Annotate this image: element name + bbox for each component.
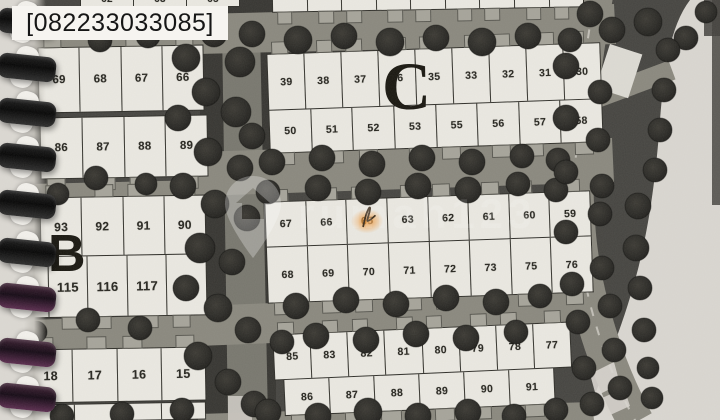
carport-footprint [345, 412, 366, 420]
lot-cell: 78 [495, 324, 534, 370]
lot-number: 92 [95, 219, 109, 233]
lot-cell: 91 [122, 196, 164, 255]
tree-icon [628, 276, 652, 300]
carport-footprint [14, 317, 32, 330]
carport-footprint [537, 32, 554, 46]
tree-icon [572, 356, 596, 380]
lot-cell: 30 [562, 43, 601, 99]
lot-number: 90 [481, 382, 494, 395]
site-plan-photo: 626365 69686766 86878889 93929190 114115… [0, 0, 720, 420]
carport-footprint [318, 11, 334, 24]
lot-cell: 89 [165, 116, 208, 177]
tree-icon [648, 118, 672, 142]
carport-footprint [355, 299, 374, 313]
lot-cell: 68 [79, 47, 121, 112]
carport-footprint [436, 296, 455, 310]
lot-cell [273, 0, 307, 12]
lot-cell: 118 [166, 254, 207, 315]
carport-footprint [177, 183, 196, 196]
lot-cell [117, 403, 161, 420]
lot-number: 67 [280, 218, 293, 230]
tree-icon [204, 294, 232, 322]
lot-cell: 73 [469, 239, 512, 295]
carport-footprint [270, 189, 289, 203]
lot-cell: 88 [123, 116, 166, 177]
carport-footprint [271, 41, 288, 55]
lot-cell: 17 [72, 349, 117, 402]
lot-number: 86 [301, 390, 314, 403]
lot-row [30, 401, 206, 420]
lot-strip: 6766656362616059 6869707172737576 [264, 190, 593, 303]
lot-cell: 58 [560, 99, 603, 142]
tree-icon [608, 376, 632, 400]
carport-footprint [396, 316, 413, 330]
lot-number: 71 [403, 264, 416, 276]
lot-number: 32 [502, 68, 515, 80]
carport-footprint [277, 11, 293, 24]
lot-number: 87 [346, 388, 359, 401]
lot-cell [341, 0, 376, 11]
tree-icon [652, 78, 676, 102]
lot-number: 68 [94, 73, 108, 85]
carport-footprint [500, 312, 517, 326]
lot-cell: 32 [488, 46, 527, 102]
lot-number: 118 [176, 277, 198, 292]
carport-footprint [562, 179, 581, 193]
lot-number: 38 [317, 74, 330, 86]
carport-footprint [388, 9, 404, 22]
lot-cell: 86 [284, 378, 330, 415]
carport-footprint [481, 182, 500, 196]
lot-subrow: 6869707172737576 [266, 236, 594, 303]
lot-number: 70 [363, 265, 376, 277]
tree-icon [590, 174, 614, 198]
tree-icon [234, 205, 260, 231]
tree-icon [674, 26, 698, 50]
lot-number: 16 [132, 367, 147, 381]
lot-subrow: 69686766 [37, 45, 204, 114]
carport-footprint [325, 150, 344, 164]
carport-footprint [276, 152, 295, 166]
carport-footprint [318, 187, 337, 201]
tree-icon [225, 47, 255, 77]
lot-number: 39 [280, 75, 293, 87]
tree-icon [599, 17, 625, 43]
lot-subrow: 86878889 [39, 115, 208, 180]
binding-wire [8, 181, 42, 228]
lot-number: 69 [322, 267, 335, 279]
carport-footprint [277, 322, 294, 336]
lot-number: 91 [526, 381, 539, 394]
binding-wire [8, 89, 42, 136]
lot-cell: 18 [29, 350, 73, 403]
lot-number: 17 [87, 368, 102, 382]
tree-icon [239, 123, 265, 149]
lot-cell: 87 [328, 376, 375, 413]
tree-icon [235, 317, 261, 343]
tree-icon [623, 235, 649, 261]
lot-cell [161, 402, 205, 419]
lot-number: 68 [281, 268, 294, 280]
tree-icon [215, 369, 241, 395]
phone-number-overlay: [082233033085] [12, 6, 228, 40]
carport-footprint [274, 302, 293, 316]
tree-icon [546, 148, 570, 172]
right-page-sliver [712, 0, 720, 205]
tree-icon [239, 21, 265, 47]
lot-number: 58 [575, 115, 588, 127]
lot-subrow: 18171615 [28, 346, 207, 403]
lot-number: 81 [397, 346, 410, 359]
carport-footprint [470, 313, 487, 327]
lot-number: 114 [17, 280, 39, 295]
lot-cell: 33 [451, 47, 490, 103]
lot-subrow: 114115116117118 [7, 253, 207, 318]
lot-row: 114115116117118 [7, 253, 207, 318]
lot-cell: 76 [550, 236, 593, 292]
carport-footprint [554, 7, 570, 20]
lot-number: 15 [176, 367, 191, 381]
lot-number: 79 [471, 342, 484, 355]
lot-cell: 16 [116, 348, 161, 401]
lot-cell: 38 [303, 52, 342, 108]
lot-number: 66 [320, 216, 333, 228]
lot-cell: 63 [386, 197, 428, 242]
carport-footprint [93, 316, 111, 329]
carport-footprint [432, 183, 451, 197]
lot-number: 63 [401, 214, 414, 226]
lot-cell: 85 [273, 334, 311, 380]
tree-icon [656, 38, 680, 62]
lot-cell: 92 [81, 197, 123, 256]
carport-footprint [485, 294, 504, 308]
tree-icon [598, 294, 622, 318]
carport-footprint [457, 8, 473, 21]
lot-cell: 60 [508, 193, 550, 238]
carport-footprint [345, 39, 362, 53]
edge-notch [602, 388, 630, 416]
lot-cell: 66 [161, 46, 203, 111]
lot-number: 89 [436, 384, 449, 397]
lot-number: 67 [135, 73, 149, 85]
carport-footprint [484, 8, 500, 21]
lot-cell: 82 [347, 331, 386, 377]
lot-number: 31 [539, 66, 552, 78]
lot-cell [74, 404, 118, 420]
tree-icon [641, 387, 663, 409]
lot-cell: 56 [476, 102, 519, 145]
carport-footprint [381, 410, 402, 420]
carport-footprint [426, 315, 443, 329]
carport-footprint [86, 336, 106, 349]
lot-cell: 67 [120, 46, 162, 111]
tree-icon [625, 193, 651, 219]
lot-cell: 65 [346, 198, 388, 243]
lot-cell: 79 [458, 326, 497, 372]
carport-footprint [141, 315, 159, 328]
carport-footprint [128, 184, 147, 197]
lot-row: 69686766 [37, 45, 204, 114]
lot-cell: 81 [384, 329, 423, 375]
lot-number: 57 [534, 116, 547, 128]
lot-number: 89 [180, 140, 194, 152]
carport-footprint [493, 33, 510, 47]
carport-footprint [94, 184, 113, 197]
lot-number: 88 [391, 386, 404, 399]
carport-footprint [403, 297, 422, 311]
tree-icon [580, 392, 604, 416]
carport-footprint [567, 31, 584, 45]
carport-footprint [61, 316, 79, 329]
lot-cell: 66 [305, 200, 347, 245]
carport-footprint [442, 146, 461, 160]
lot-cell: 70 [347, 243, 390, 299]
block-b-label: B [48, 228, 86, 280]
lot-cell: 68 [267, 246, 309, 302]
carport-footprint [409, 147, 428, 161]
lot-number: 78 [509, 341, 522, 354]
lot-number: 73 [484, 261, 497, 273]
lot-subrow [272, 0, 584, 13]
lot-number: 82 [360, 347, 373, 360]
lot-number: 56 [492, 118, 505, 130]
lot-number: 61 [483, 211, 496, 223]
lot-cell [306, 0, 341, 11]
carport-footprint [346, 10, 362, 23]
tree-icon [227, 155, 253, 181]
tree-icon [602, 338, 626, 362]
lot-number: 83 [323, 349, 336, 362]
carport-footprint [399, 184, 418, 198]
lot-cell: 114 [8, 257, 48, 318]
lot-cell [445, 0, 480, 9]
tree-icon [588, 202, 612, 226]
lot-number: 76 [566, 258, 579, 270]
lot-cell: 116 [87, 256, 128, 317]
tree-icon [221, 97, 251, 127]
carport-footprint [122, 336, 142, 349]
edge-notch [590, 362, 620, 396]
binding-wire [8, 134, 42, 181]
carport-footprint [471, 406, 492, 420]
lot-cell: 77 [532, 323, 571, 369]
lot-number: 51 [326, 123, 339, 135]
lot-cell [479, 0, 514, 8]
lot-number: 87 [96, 141, 110, 153]
lot-number: 66 [176, 72, 190, 84]
lot-subrow [30, 401, 206, 420]
lot-cell: 71 [388, 242, 431, 298]
lot-cell: 15 [160, 347, 205, 400]
carport-footprint [175, 335, 195, 348]
carport-footprint [321, 320, 338, 334]
lot-cell: 86 [40, 118, 82, 179]
lot-cell: 90 [463, 370, 510, 407]
tree-icon [637, 357, 659, 379]
lot-cell: 87 [81, 117, 124, 178]
carport-footprint [435, 408, 456, 420]
lot-number: 60 [523, 209, 536, 221]
lot-number: 86 [55, 142, 69, 154]
lot-cell: 57 [518, 101, 561, 144]
lot-cell: 91 [508, 368, 555, 405]
lot-cell: 80 [421, 327, 460, 373]
carport-footprint [315, 40, 332, 54]
carport-footprint [492, 144, 511, 158]
lot-number: 59 [564, 208, 577, 220]
right-corner-shade [704, 0, 720, 36]
small-plot [228, 396, 252, 420]
lot-number: 75 [525, 260, 538, 272]
binding-wire [8, 44, 42, 91]
lot-cell [514, 0, 549, 7]
carport-footprint [322, 300, 341, 314]
lot-number: 50 [284, 125, 297, 137]
lot-cell: 39 [267, 54, 305, 110]
lot-strip: 393837363533323130 5051525355565758 [266, 42, 603, 154]
lot-cell: 72 [428, 241, 471, 297]
lot-row: 86878889 [39, 115, 208, 180]
carport-footprint [517, 293, 536, 307]
lot-number: 52 [367, 122, 380, 134]
lot-cell: 69 [307, 245, 350, 301]
lot-row: 18171615 [28, 346, 207, 403]
carport-footprint [526, 7, 542, 20]
tree-icon [643, 158, 667, 182]
carport-footprint [351, 318, 368, 332]
lot-number: 69 [52, 74, 66, 86]
lot-cell: 75 [510, 238, 553, 294]
lot-number: 55 [450, 119, 463, 131]
lot-cell: 67 [265, 201, 306, 246]
tree-icon [241, 391, 267, 417]
tree-icon [459, 149, 485, 175]
lot-cell [31, 405, 74, 420]
building-marker [596, 44, 643, 98]
lot-number: 90 [178, 218, 192, 232]
carport-footprint [525, 143, 544, 157]
lot-cell: 62 [427, 196, 469, 241]
carport-footprint [34, 337, 54, 350]
pen-scribble-icon [355, 202, 378, 231]
tree-icon [219, 249, 245, 275]
lot-cell: 89 [418, 372, 465, 409]
lot-number: 72 [444, 263, 457, 275]
lot-number: 80 [434, 344, 447, 357]
lot-cell: 88 [373, 374, 420, 411]
carport-footprint [575, 141, 594, 155]
lot-cell [376, 0, 411, 10]
lot-strip: 8583828180797877 868788899091 [272, 322, 573, 417]
lot-cell: 59 [549, 191, 591, 236]
lot-number: 117 [136, 278, 158, 293]
carport-footprint [173, 315, 191, 328]
tree-icon [632, 318, 656, 342]
lot-cell: 83 [309, 332, 348, 378]
carport-footprint [463, 34, 480, 48]
lot-number: 88 [138, 141, 152, 153]
lot-number: 18 [43, 369, 58, 383]
block-c-label: C [382, 52, 431, 120]
tree-icon [590, 256, 614, 280]
tree-icon [695, 1, 717, 23]
lot-cell: 37 [340, 51, 379, 107]
carport-footprint [45, 185, 64, 198]
lot-number: 37 [354, 73, 367, 85]
lot-cell: 51 [310, 108, 353, 151]
lot-cell [410, 0, 445, 9]
carport-footprint [544, 310, 561, 324]
lot-cell: 69 [38, 48, 79, 113]
lot-number: 77 [546, 339, 559, 352]
carport-footprint [415, 9, 431, 22]
lot-cell: 55 [435, 104, 478, 147]
carport-footprint [291, 414, 312, 420]
carport-footprint [351, 186, 370, 200]
tree-icon [284, 26, 312, 54]
carport-footprint [513, 180, 532, 194]
lot-cell: 50 [269, 109, 311, 152]
lot-cell: 90 [163, 196, 205, 255]
carport-footprint [566, 292, 585, 306]
carport-footprint [359, 149, 378, 163]
tree-icon [634, 8, 662, 36]
lot-number: 85 [286, 350, 299, 363]
lot-number: 62 [442, 212, 455, 224]
lot-number: 116 [96, 278, 118, 293]
lot-number: 91 [137, 219, 151, 233]
lot-cell: 117 [126, 255, 167, 316]
lot-row [272, 0, 584, 13]
lot-cell [548, 0, 583, 7]
lot-cell: 31 [525, 45, 564, 101]
lot-number: 33 [465, 69, 478, 81]
carport-footprint [525, 404, 546, 418]
lot-number: 30 [576, 65, 589, 77]
lot-cell: 61 [467, 194, 509, 239]
